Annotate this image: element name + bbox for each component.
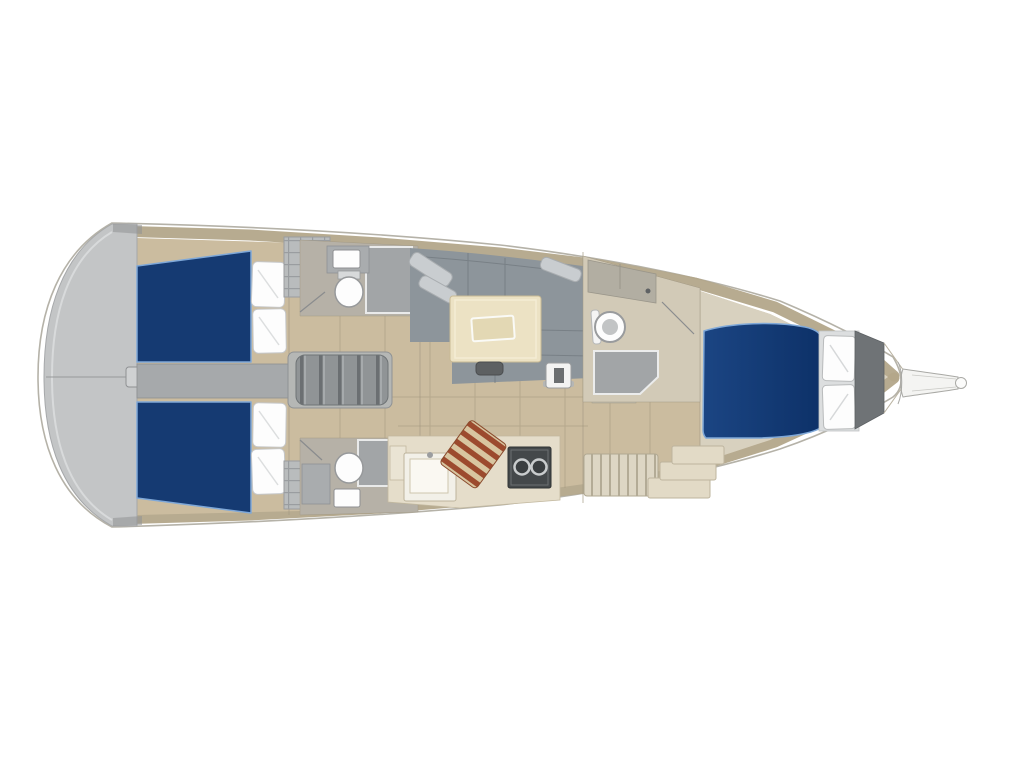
floor-plan-svg [0, 0, 1024, 768]
faucet [427, 452, 433, 458]
slatted-bench [584, 454, 658, 496]
engine-walkway [137, 364, 305, 398]
anchor-locker [855, 331, 884, 429]
vanity-counter [302, 464, 330, 504]
forward-berth [703, 324, 822, 438]
table-inset-tray [471, 316, 515, 342]
stove-burner [515, 460, 530, 475]
toilet [335, 453, 363, 483]
forward-step [672, 446, 724, 464]
forward-step [648, 478, 710, 498]
swim-platform [44, 224, 137, 526]
sink [333, 250, 360, 268]
aft-berth-starboard [137, 402, 251, 513]
floor-plan-canvas [0, 0, 1024, 768]
stove-burner [532, 460, 547, 475]
bowsprit [901, 369, 958, 397]
mast-post [554, 368, 564, 383]
aft-berth-port [137, 251, 251, 362]
shower-pan [366, 247, 412, 313]
sink [334, 489, 360, 507]
table-leg [476, 362, 503, 375]
bowsprit-tip [956, 378, 967, 389]
toilet-bowl [602, 319, 618, 335]
toilet [335, 277, 363, 307]
forward-step [660, 462, 716, 480]
cabinet-handle [646, 289, 651, 294]
companionway-steps [296, 355, 388, 405]
